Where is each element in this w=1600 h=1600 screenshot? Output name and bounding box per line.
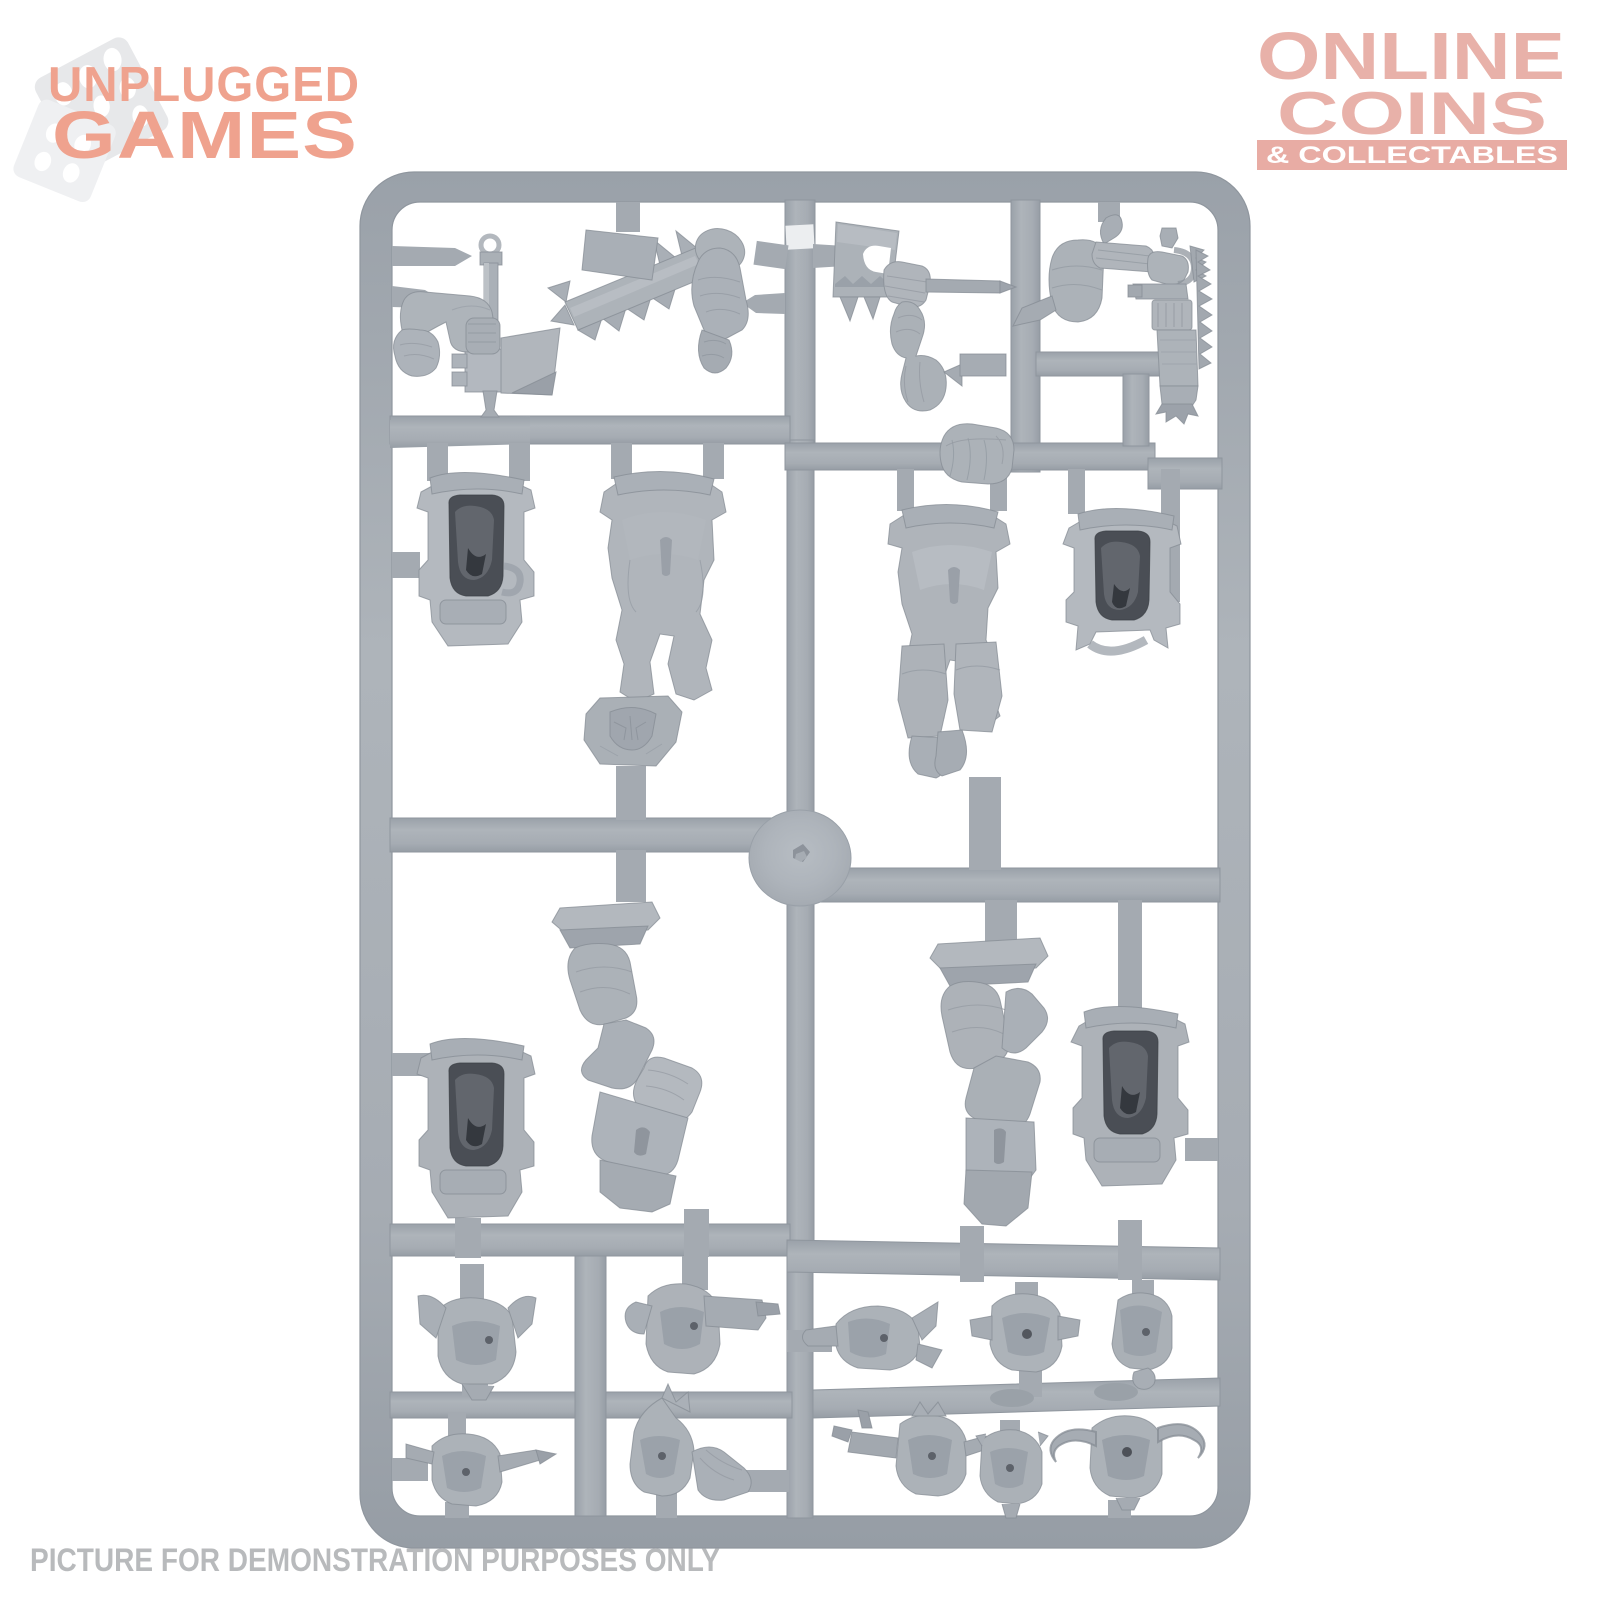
svg-text:& COLLECTABLES: & COLLECTABLES xyxy=(1266,142,1558,169)
svg-text:GAMES: GAMES xyxy=(52,98,358,173)
svg-text:PICTURE FOR DEMONSTRATION PURP: PICTURE FOR DEMONSTRATION PURPOSES ONLY xyxy=(30,1542,720,1578)
svg-text:COINS: COINS xyxy=(1277,80,1547,147)
